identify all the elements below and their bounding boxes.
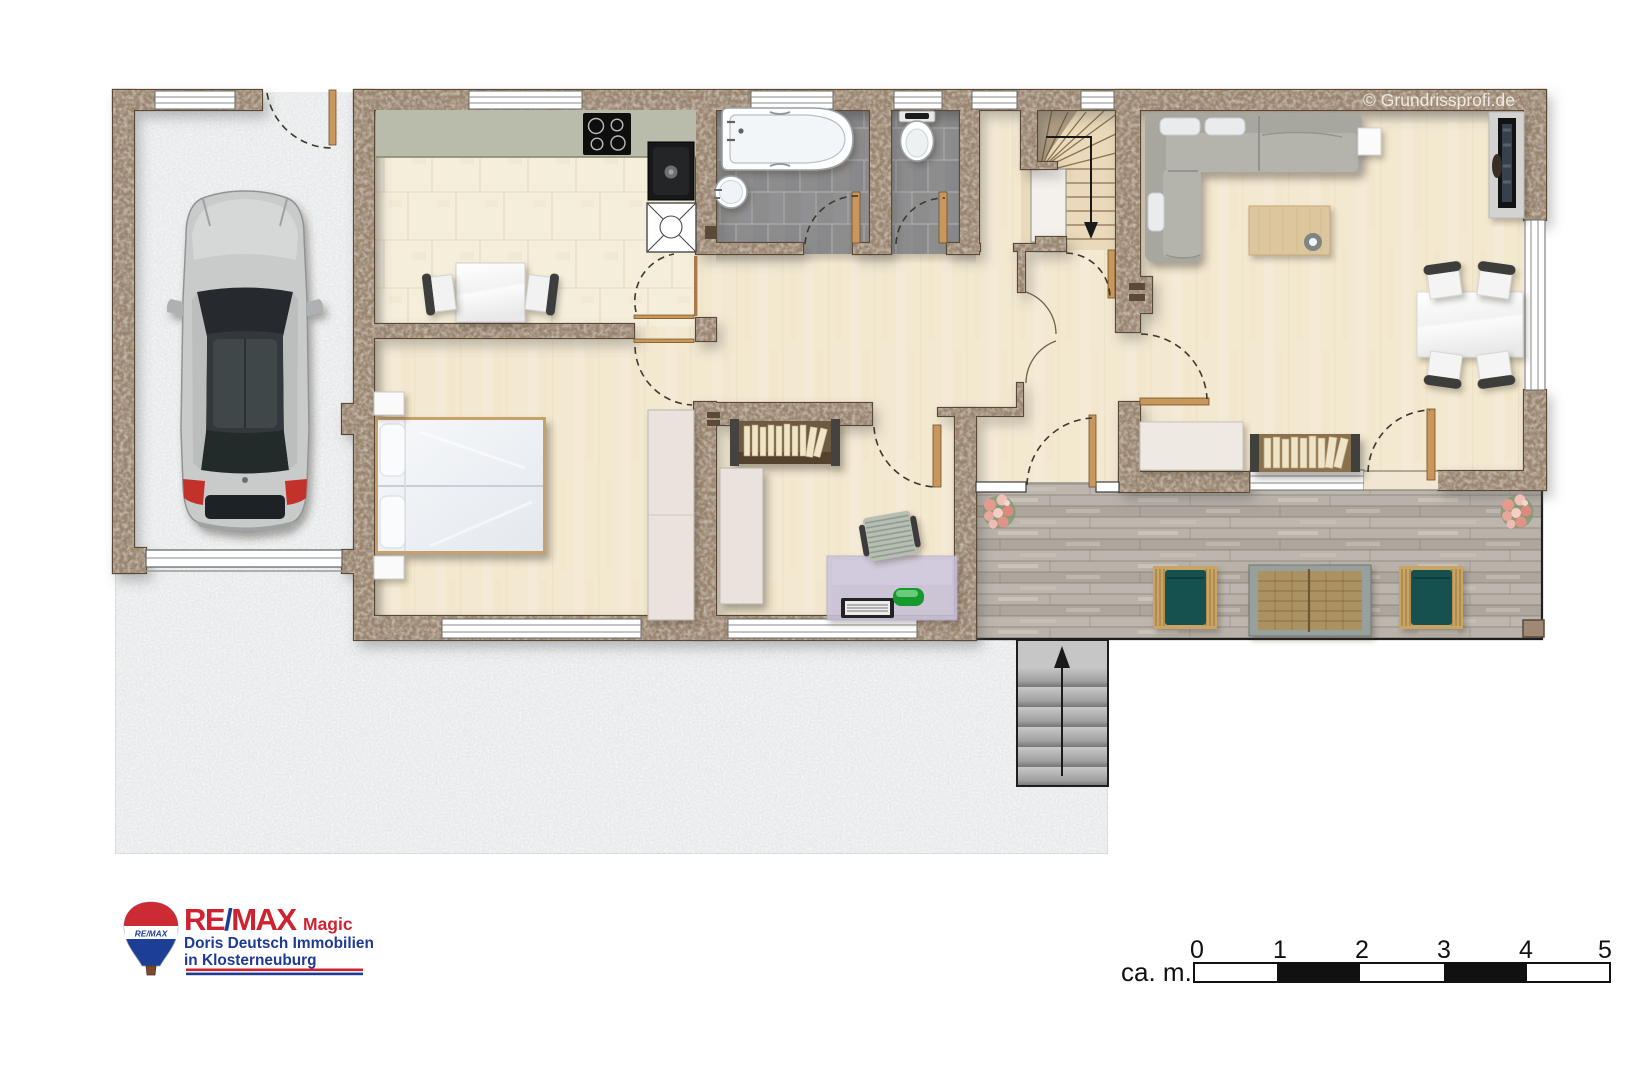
svg-text:2: 2 (1355, 936, 1369, 964)
svg-text:RE/MAX: RE/MAX (135, 929, 168, 939)
svg-text:ca. m.: ca. m. (1121, 957, 1192, 987)
svg-text:in Klosterneuburg: in Klosterneuburg (184, 952, 317, 969)
svg-text:3: 3 (1437, 936, 1451, 964)
svg-text:© Grundrissprofi.de: © Grundrissprofi.de (1363, 90, 1515, 110)
svg-text:5: 5 (1598, 936, 1612, 964)
svg-text:Doris Deutsch Immobilien: Doris Deutsch Immobilien (184, 935, 374, 952)
svg-text:1: 1 (1273, 936, 1287, 964)
svg-text:4: 4 (1519, 936, 1533, 964)
svg-text:0: 0 (1190, 936, 1204, 964)
svg-text:RE/MAX: RE/MAX (184, 902, 297, 937)
svg-text:Magic: Magic (303, 914, 353, 934)
